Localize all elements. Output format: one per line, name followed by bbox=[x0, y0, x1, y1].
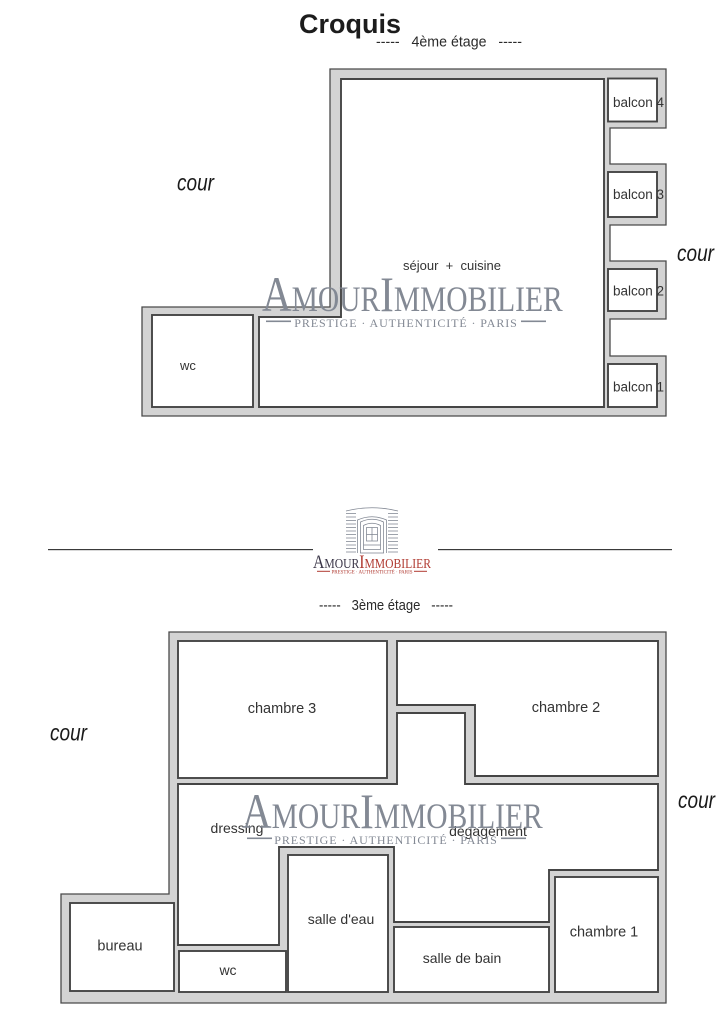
svg-text:balcon 2: balcon 2 bbox=[613, 284, 664, 299]
svg-text:bureau: bureau bbox=[97, 939, 142, 955]
svg-text:cour: cour bbox=[50, 720, 88, 746]
svg-text:balcon 4: balcon 4 bbox=[613, 95, 665, 110]
svg-text:cour: cour bbox=[177, 170, 215, 196]
svg-text:----- 3ème étage -----: ----- 3ème étage ----- bbox=[319, 597, 453, 614]
svg-text:PRESTIGE · AUTHENTICITÉ · PARI: PRESTIGE · AUTHENTICITÉ · PARIS bbox=[332, 568, 413, 576]
svg-text:PRESTIGE · AUTHENTICITÉ · PARI: PRESTIGE · AUTHENTICITÉ · PARIS bbox=[294, 316, 517, 330]
svg-text:salle de bain: salle de bain bbox=[423, 950, 502, 966]
svg-text:chambre 1: chambre 1 bbox=[570, 925, 639, 941]
svg-text:chambre 2: chambre 2 bbox=[532, 700, 601, 716]
svg-text:wc: wc bbox=[179, 358, 196, 373]
svg-text:salle d'eau: salle d'eau bbox=[308, 911, 375, 927]
svg-text:----- 4ème étage -----: ----- 4ème étage ----- bbox=[376, 34, 522, 51]
svg-text:balcon 1: balcon 1 bbox=[613, 380, 664, 395]
svg-text:chambre 3: chambre 3 bbox=[248, 701, 317, 717]
svg-text:cour: cour bbox=[678, 787, 716, 813]
svg-text:balcon 3: balcon 3 bbox=[613, 187, 664, 202]
svg-text:séjour + cuisine: séjour + cuisine bbox=[403, 258, 501, 273]
svg-text:PRESTIGE · AUTHENTICITÉ · PARI: PRESTIGE · AUTHENTICITÉ · PARIS bbox=[274, 833, 497, 847]
svg-text:wc: wc bbox=[218, 962, 236, 978]
svg-text:cour: cour bbox=[677, 240, 715, 266]
